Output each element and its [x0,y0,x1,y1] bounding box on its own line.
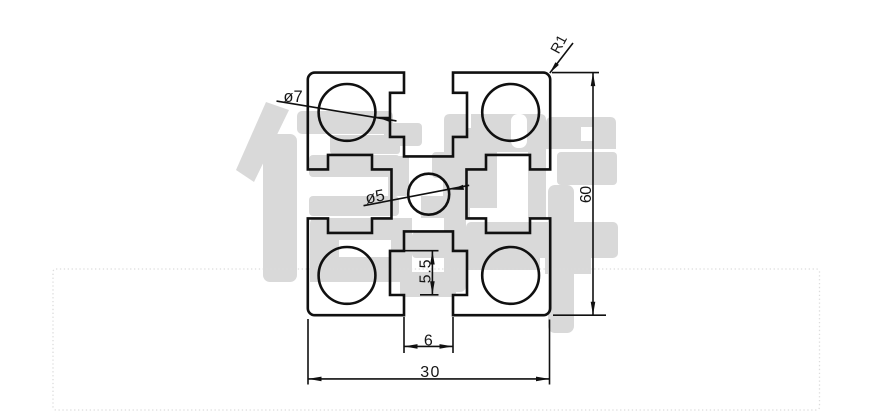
svg-text:5.5: 5.5 [417,259,434,284]
svg-text:R1: R1 [548,33,571,57]
svg-text:ø7: ø7 [283,88,302,106]
svg-text:6: 6 [424,333,433,350]
svg-text:30: 30 [420,364,441,381]
svg-text:ø5: ø5 [364,186,386,207]
svg-text:60: 60 [578,186,595,203]
